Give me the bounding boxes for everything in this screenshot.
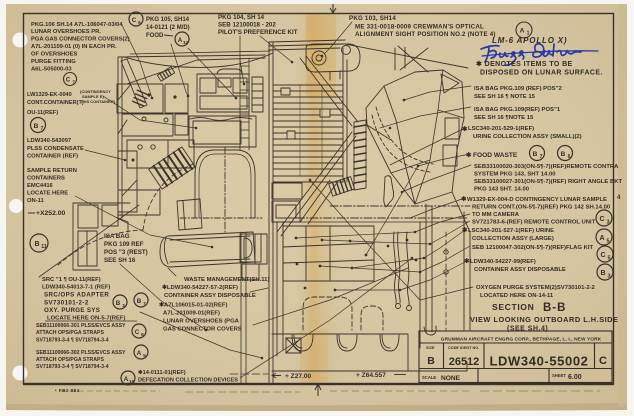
svg-text:5: 5 (608, 256, 611, 262)
svg-text:C: C (132, 17, 137, 24)
svg-text:6: 6 (138, 20, 141, 26)
svg-text:✱: ✱ (462, 125, 468, 133)
svg-text:✱: ✱ (461, 195, 467, 203)
svg-text:6.00: 6.00 (568, 374, 582, 381)
svg-text:DISPOSED ON LUNAR SURFACE.: DISPOSED ON LUNAR SURFACE. (480, 70, 603, 77)
svg-text:ME 331-0018-0009 CREWMAN'S OPT: ME 331-0018-0009 CREWMAN'S OPTICAL (355, 24, 484, 31)
svg-text:✱ DENOTES ITEMS TO BE: ✱ DENOTES ITEMS TO BE (476, 60, 573, 68)
svg-text:B: B (600, 270, 605, 277)
svg-text:SEB11100066-301 PLSS/EVCS ASSY: SEB11100066-301 PLSS/EVCS ASSY (36, 323, 126, 329)
svg-text:6: 6 (568, 154, 571, 160)
svg-text:SRC ”1 ¶ OU-11(REF): SRC ”1 ¶ OU-11(REF) (42, 277, 101, 283)
svg-text:LOCATE HERE: LOCATE HERE (27, 191, 68, 197)
svg-text:WASTE MANAGEMENT(SH.11): WASTE MANAGEMENT(SH.11) (184, 277, 269, 283)
svg-text:✱A7L106015-01-02(REF): ✱A7L106015-01-02(REF) (159, 302, 227, 309)
svg-text:SYSTEM PKG 143, SHT 14.00: SYSTEM PKG 143, SHT 14.00 (474, 172, 556, 178)
svg-text:OF OVERSHOES: OF OVERSHOES (31, 52, 78, 58)
svg-text:LDW340-543097: LDW340-543097 (27, 138, 71, 144)
svg-text:CONTAINERS: CONTAINERS (27, 176, 65, 182)
svg-text:7: 7 (72, 80, 75, 85)
svg-text:A7L-201009-01(REF): A7L-201009-01(REF) (163, 311, 220, 317)
svg-text:5: 5 (607, 239, 610, 245)
svg-text:LW1329-EK-0040: LW1329-EK-0040 (27, 92, 72, 98)
svg-text:B-B: B-B (543, 302, 566, 314)
svg-text:SIZE: SIZE (426, 346, 435, 350)
svg-text:7: 7 (41, 126, 44, 132)
svg-text:14-0121 (2 M/D): 14-0121 (2 M/D) (146, 25, 190, 31)
svg-text:COLLECTION ASSY (LARGE): COLLECTION ASSY (LARGE) (472, 236, 554, 242)
svg-text:SEB 12100018 - 202: SEB 12100018 - 202 (218, 22, 276, 29)
svg-text:B: B (34, 123, 39, 130)
svg-text:ATTACH OPS/PGA STRAPS: ATTACH OPS/PGA STRAPS (36, 357, 104, 363)
svg-text:C: C (599, 216, 604, 223)
svg-text:PKG 104, SH 14: PKG 104, SH 14 (218, 14, 265, 21)
svg-text:LUNAR OVERSHOES PR.: LUNAR OVERSHOES PR. (31, 29, 101, 35)
svg-text:3: 3 (122, 303, 125, 309)
svg-text:A: A (520, 28, 525, 35)
svg-text:SV721783-6-(REF) REMOTE CONTR: SV721783-6-(REF) REMOTE CONTROL UNIT (472, 220, 596, 226)
svg-text:26512: 26512 (449, 356, 480, 368)
svg-text:SEE SH 16: SEE SH 16 (104, 257, 136, 264)
svg-text:LSC340-201-527-1(REF) URINE: LSC340-201-527-1(REF) URINE (468, 228, 554, 234)
svg-text:11: 11 (41, 244, 47, 250)
svg-text:A7L-201109-01 (0) IN EACH PR.: A7L-201109-01 (0) IN EACH PR. (31, 44, 117, 50)
svg-text:PGA GAS CONNECTOR COVERS(2): PGA GAS CONNECTOR COVERS(2) (31, 37, 130, 43)
svg-text:B: B (137, 298, 142, 305)
svg-text:+ Z27.00: + Z27.00 (285, 373, 312, 380)
svg-text:7: 7 (143, 301, 146, 307)
svg-text:OU-11(REF): OU-11(REF) (27, 110, 58, 116)
svg-text:B: B (533, 151, 538, 158)
svg-text:6: 6 (141, 332, 144, 338)
svg-text:ISA BAG: ISA BAG (104, 233, 130, 240)
svg-text:+X252.00: +X252.00 (36, 210, 66, 217)
svg-text:CONTAINER (REF): CONTAINER (REF) (27, 154, 78, 160)
svg-text:LUNAR OVERSHOES (PGA: LUNAR OVERSHOES (PGA (163, 319, 240, 325)
svg-text:C: C (135, 329, 140, 336)
svg-text:CONT.CONTAINER(?): CONT.CONTAINER(?) (27, 100, 84, 106)
svg-text:CONTAINER ASSY DISPOSABLE: CONTAINER ASSY DISPOSABLE (474, 267, 566, 273)
svg-text:CONTAINER ASSY DISPOSABLE: CONTAINER ASSY DISPOSABLE (164, 293, 256, 299)
svg-text:(SEE SH.4): (SEE SH.4) (507, 326, 548, 333)
svg-text:DEFECATION COLLECTION DEVICES: DEFECATION COLLECTION DEVICES (138, 378, 238, 384)
svg-text:PKG 103, SH14: PKG 103, SH14 (349, 15, 396, 22)
svg-text:PKG 105, SH14: PKG 105, SH14 (146, 17, 190, 23)
svg-text:A: A (137, 350, 142, 357)
svg-text:LSC340-201-529-1(REF): LSC340-201-529-1(REF) (468, 126, 534, 132)
svg-text:✱LDW340-54227-57-2(REF): ✱LDW340-54227-57-2(REF) (162, 284, 238, 291)
svg-text:CODE IDENT NO.: CODE IDENT NO. (448, 346, 479, 350)
svg-text:ISA BAG PKG.109(REF) POS”1: ISA BAG PKG.109(REF) POS”1 (474, 107, 561, 113)
svg-text:LOCATED HERE ON-14-11: LOCATED HERE ON-14-11 (480, 293, 554, 299)
svg-text:3: 3 (608, 274, 611, 280)
svg-text:5: 5 (143, 353, 146, 359)
svg-text:12: 12 (183, 40, 189, 46)
svg-text:EMC4416: EMC4416 (27, 183, 54, 189)
svg-text:FOOD: FOOD (146, 33, 164, 39)
svg-text:PKG 109 REF: PKG 109 REF (104, 241, 144, 248)
svg-text:SV718793-3-4 ¶ SV718794-3-4: SV718793-3-4 ¶ SV718794-3-4 (36, 364, 109, 370)
svg-text:C: C (600, 252, 605, 259)
svg-text:C: C (66, 78, 71, 84)
svg-text:OXY. PURGE SYS: OXY. PURGE SYS (44, 307, 100, 314)
svg-text:SV730101-2-2: SV730101-2-2 (44, 300, 89, 307)
svg-text:A: A (599, 235, 604, 242)
svg-text:SEB11100066-302 PLSS/EVCS ASSY: SEB11100066-302 PLSS/EVCS ASSY (36, 350, 126, 356)
svg-text:PKG 143 SHT. 14.00: PKG 143 SHT. 14.00 (474, 187, 530, 193)
svg-text:SV718793-3-4 ¶ SV718794-3-4: SV718793-3-4 ¶ SV718794-3-4 (36, 338, 109, 344)
svg-text:SEB 12100047-302(ON-5¶-7)(REF): SEB 12100047-302(ON-5¶-7)(REF)FLAG KIT (472, 245, 594, 251)
svg-text:SEE SH 16 ¶ NOTE 15: SEE SH 16 ¶ NOTE 15 (474, 94, 536, 100)
svg-text:SRC/OPS ADAPTER: SRC/OPS ADAPTER (44, 292, 109, 299)
svg-text:B: B (427, 355, 435, 367)
svg-text:SECTION: SECTION (492, 302, 534, 312)
svg-text:POS ”3 (REST): POS ”3 (REST) (104, 249, 148, 256)
svg-text:NONE: NONE (441, 375, 461, 382)
svg-text:7: 7 (540, 154, 543, 160)
svg-text:PLSS CONDENSATE: PLSS CONDENSATE (27, 146, 84, 152)
svg-text:VIEW LOOKING OUTBOARD L.H.SIDE: VIEW LOOKING OUTBOARD L.H.SIDE (470, 315, 618, 324)
svg-text:GRUMMAN AIRCRAFT ENGRG CORP.,: GRUMMAN AIRCRAFT ENGRG CORP., BETHPAGE, … (441, 337, 602, 343)
svg-text:B: B (561, 151, 566, 158)
svg-text:URINE COLLECTION ASSY (SMALL)(: URINE COLLECTION ASSY (SMALL)(2) (473, 134, 582, 140)
svg-text:ISA BAG PKG.109 (REF) POS”2: ISA BAG PKG.109 (REF) POS”2 (474, 86, 563, 92)
svg-text:GAS CONNECTOR COVERS: GAS CONNECTOR COVERS (163, 327, 242, 333)
svg-text:PILOT'S PREFERENCE KIT: PILOT'S PREFERENCE KIT (218, 29, 298, 36)
svg-text:FOOD WASTE: FOOD WASTE (473, 152, 518, 159)
svg-text:RETURN CONT.(ON-5¶-7)(REF) PKG: RETURN CONT.(ON-5¶-7)(REF) PKG 142 SH.14… (472, 205, 611, 211)
svg-text:C: C (599, 355, 607, 367)
svg-text:ALIGNMENT SIGHT POSITION NO.2: ALIGNMENT SIGHT POSITION NO.2 (NOTE 4) (355, 31, 496, 38)
svg-text:SEB33100027-301(ON-5¶-7)(REF): SEB33100027-301(ON-5¶-7)(REF) RIGHT ANGL… (474, 179, 622, 185)
svg-text:LDW340-54013-7-1 (REF): LDW340-54013-7-1 (REF) (42, 285, 110, 291)
svg-text:• FB2 884: • FB2 884 (55, 388, 80, 393)
svg-text:W1329-EX-004-D CONTINGENCY LUN: W1329-EX-004-D CONTINGENCY LUNAR SAMPLE (467, 197, 607, 203)
svg-text:+ Z64.557: + Z64.557 (356, 372, 386, 379)
svg-text:PKG.106 SH.14 A7L-106047-03/: PKG.106 SH.14 A7L-106047-03/04 (31, 22, 123, 28)
svg-text:LM-6 APOLLO X): LM-6 APOLLO X) (492, 36, 567, 45)
svg-text:LDW340-54227-99(REF): LDW340-54227-99(REF) (470, 259, 536, 265)
svg-text:THIS CONTAINER): THIS CONTAINER) (80, 99, 116, 104)
svg-text:SHEET: SHEET (552, 373, 566, 378)
svg-text:SCALE: SCALE (422, 375, 436, 380)
svg-text:✱: ✱ (464, 257, 470, 265)
svg-text:B: B (116, 300, 121, 307)
svg-text:✱14-0111-01(REF): ✱14-0111-01(REF) (138, 369, 186, 376)
svg-text:✱: ✱ (462, 226, 468, 234)
svg-text:OXYGEN PURGE SYSTEM(2)SV730101: OXYGEN PURGE SYSTEM(2)SV730101-2-2 (476, 285, 596, 291)
svg-text:ATTACH OPS/PGA STRAPS: ATTACH OPS/PGA STRAPS (36, 330, 104, 336)
svg-text:LDW340-55002: LDW340-55002 (490, 354, 589, 369)
svg-text:A6L-505000-03: A6L-505000-03 (31, 67, 72, 73)
svg-text:SEB33100020-303(ON-5¶-7)(REF)R: SEB33100020-303(ON-5¶-7)(REF)REMOTE CONT… (474, 164, 619, 170)
svg-text:SEE SH 16 ¶NOTE 15: SEE SH 16 ¶NOTE 15 (474, 115, 534, 121)
svg-text:PURGE FITTING: PURGE FITTING (31, 59, 76, 65)
svg-text:3: 3 (607, 220, 610, 226)
svg-text:✱: ✱ (466, 151, 472, 159)
svg-text:SAMPLE RETURN: SAMPLE RETURN (27, 168, 77, 174)
svg-text:B: B (34, 241, 39, 248)
svg-text:TO MM CAMERA: TO MM CAMERA (472, 212, 520, 218)
svg-text:19: 19 (129, 379, 135, 385)
svg-text:ON-11: ON-11 (27, 198, 45, 204)
